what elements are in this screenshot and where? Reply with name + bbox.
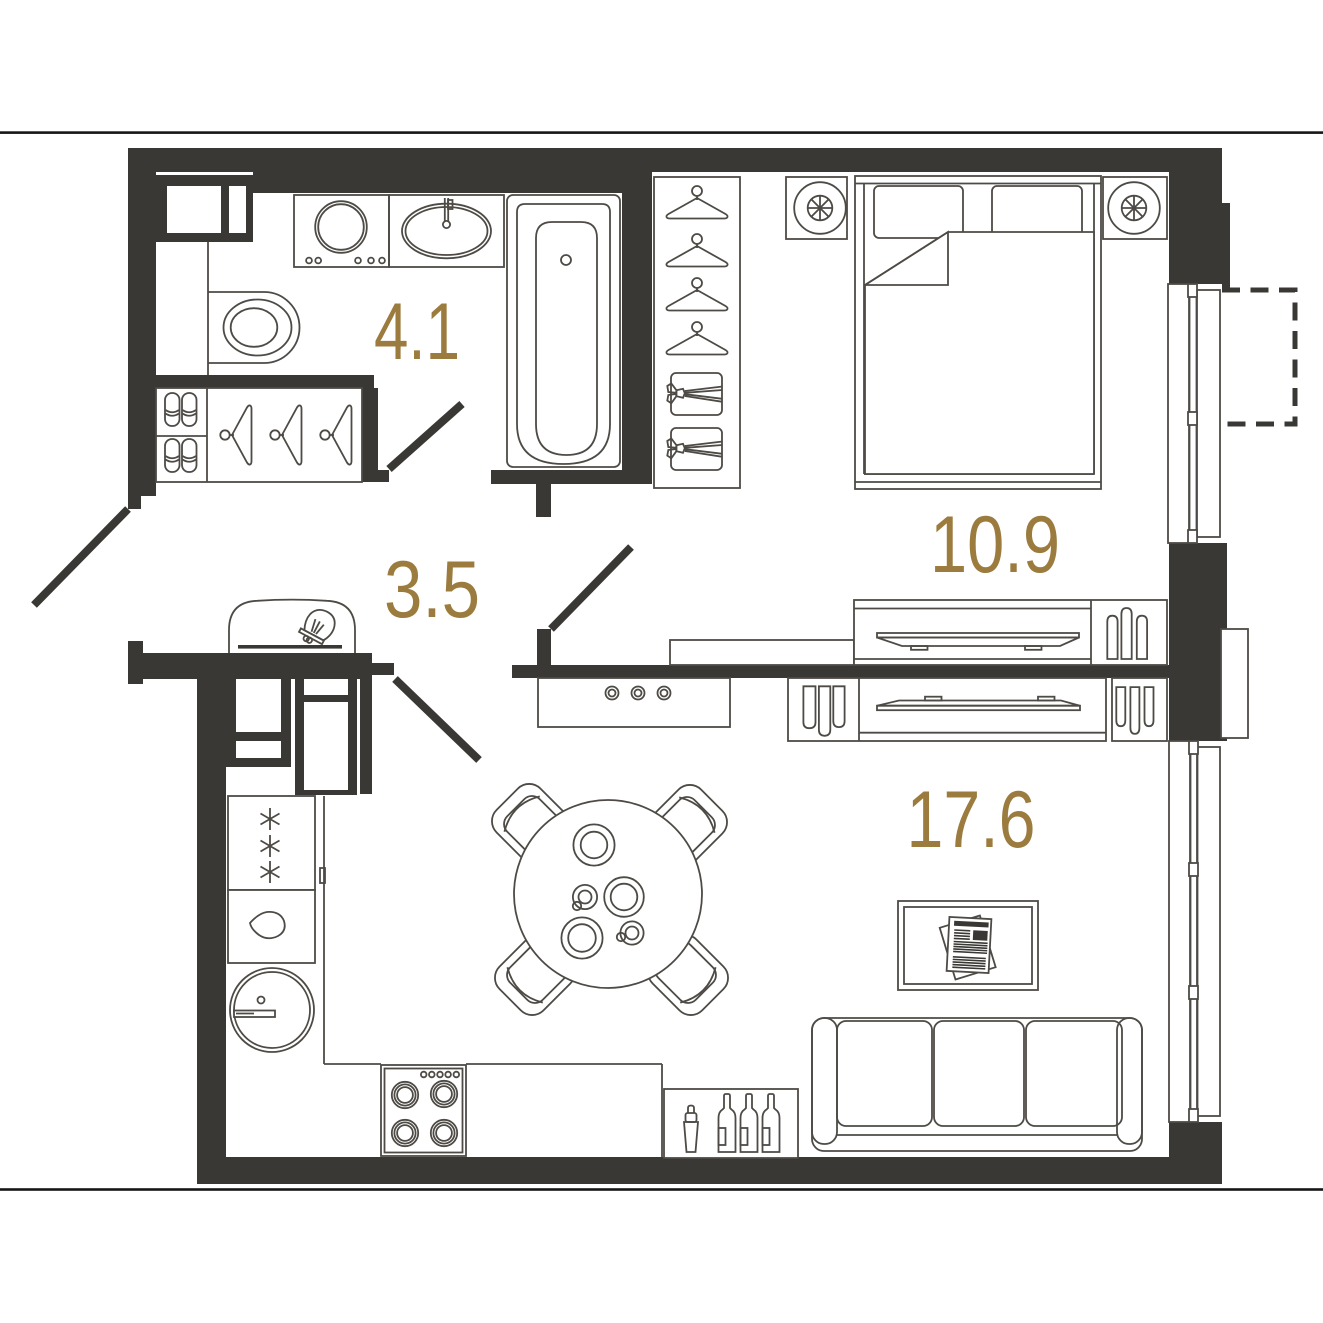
svg-text:10.9: 10.9: [930, 500, 1060, 590]
svg-text:4.1: 4.1: [374, 287, 460, 377]
svg-text:17.6: 17.6: [907, 775, 1036, 865]
svg-text:3.5: 3.5: [384, 545, 480, 635]
